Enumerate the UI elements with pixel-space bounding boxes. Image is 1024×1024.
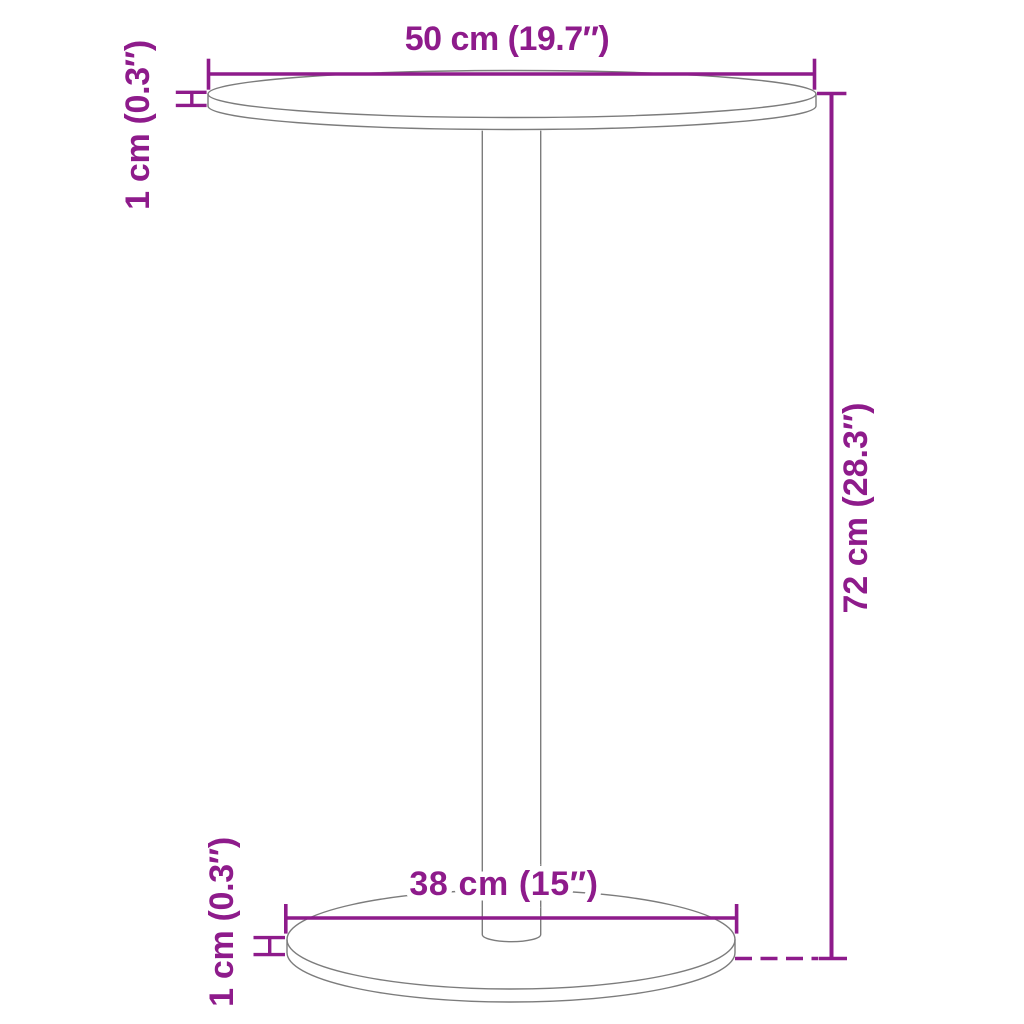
svg-text:50 cm (19.7″): 50 cm (19.7″) xyxy=(405,20,609,58)
svg-text:1 cm (0.3″): 1 cm (0.3″) xyxy=(203,837,241,1007)
svg-text:72 cm (28.3″): 72 cm (28.3″) xyxy=(837,403,875,614)
svg-text:38 cm (15″): 38 cm (15″) xyxy=(409,865,598,903)
svg-text:1 cm (0.3″): 1 cm (0.3″) xyxy=(119,40,157,210)
